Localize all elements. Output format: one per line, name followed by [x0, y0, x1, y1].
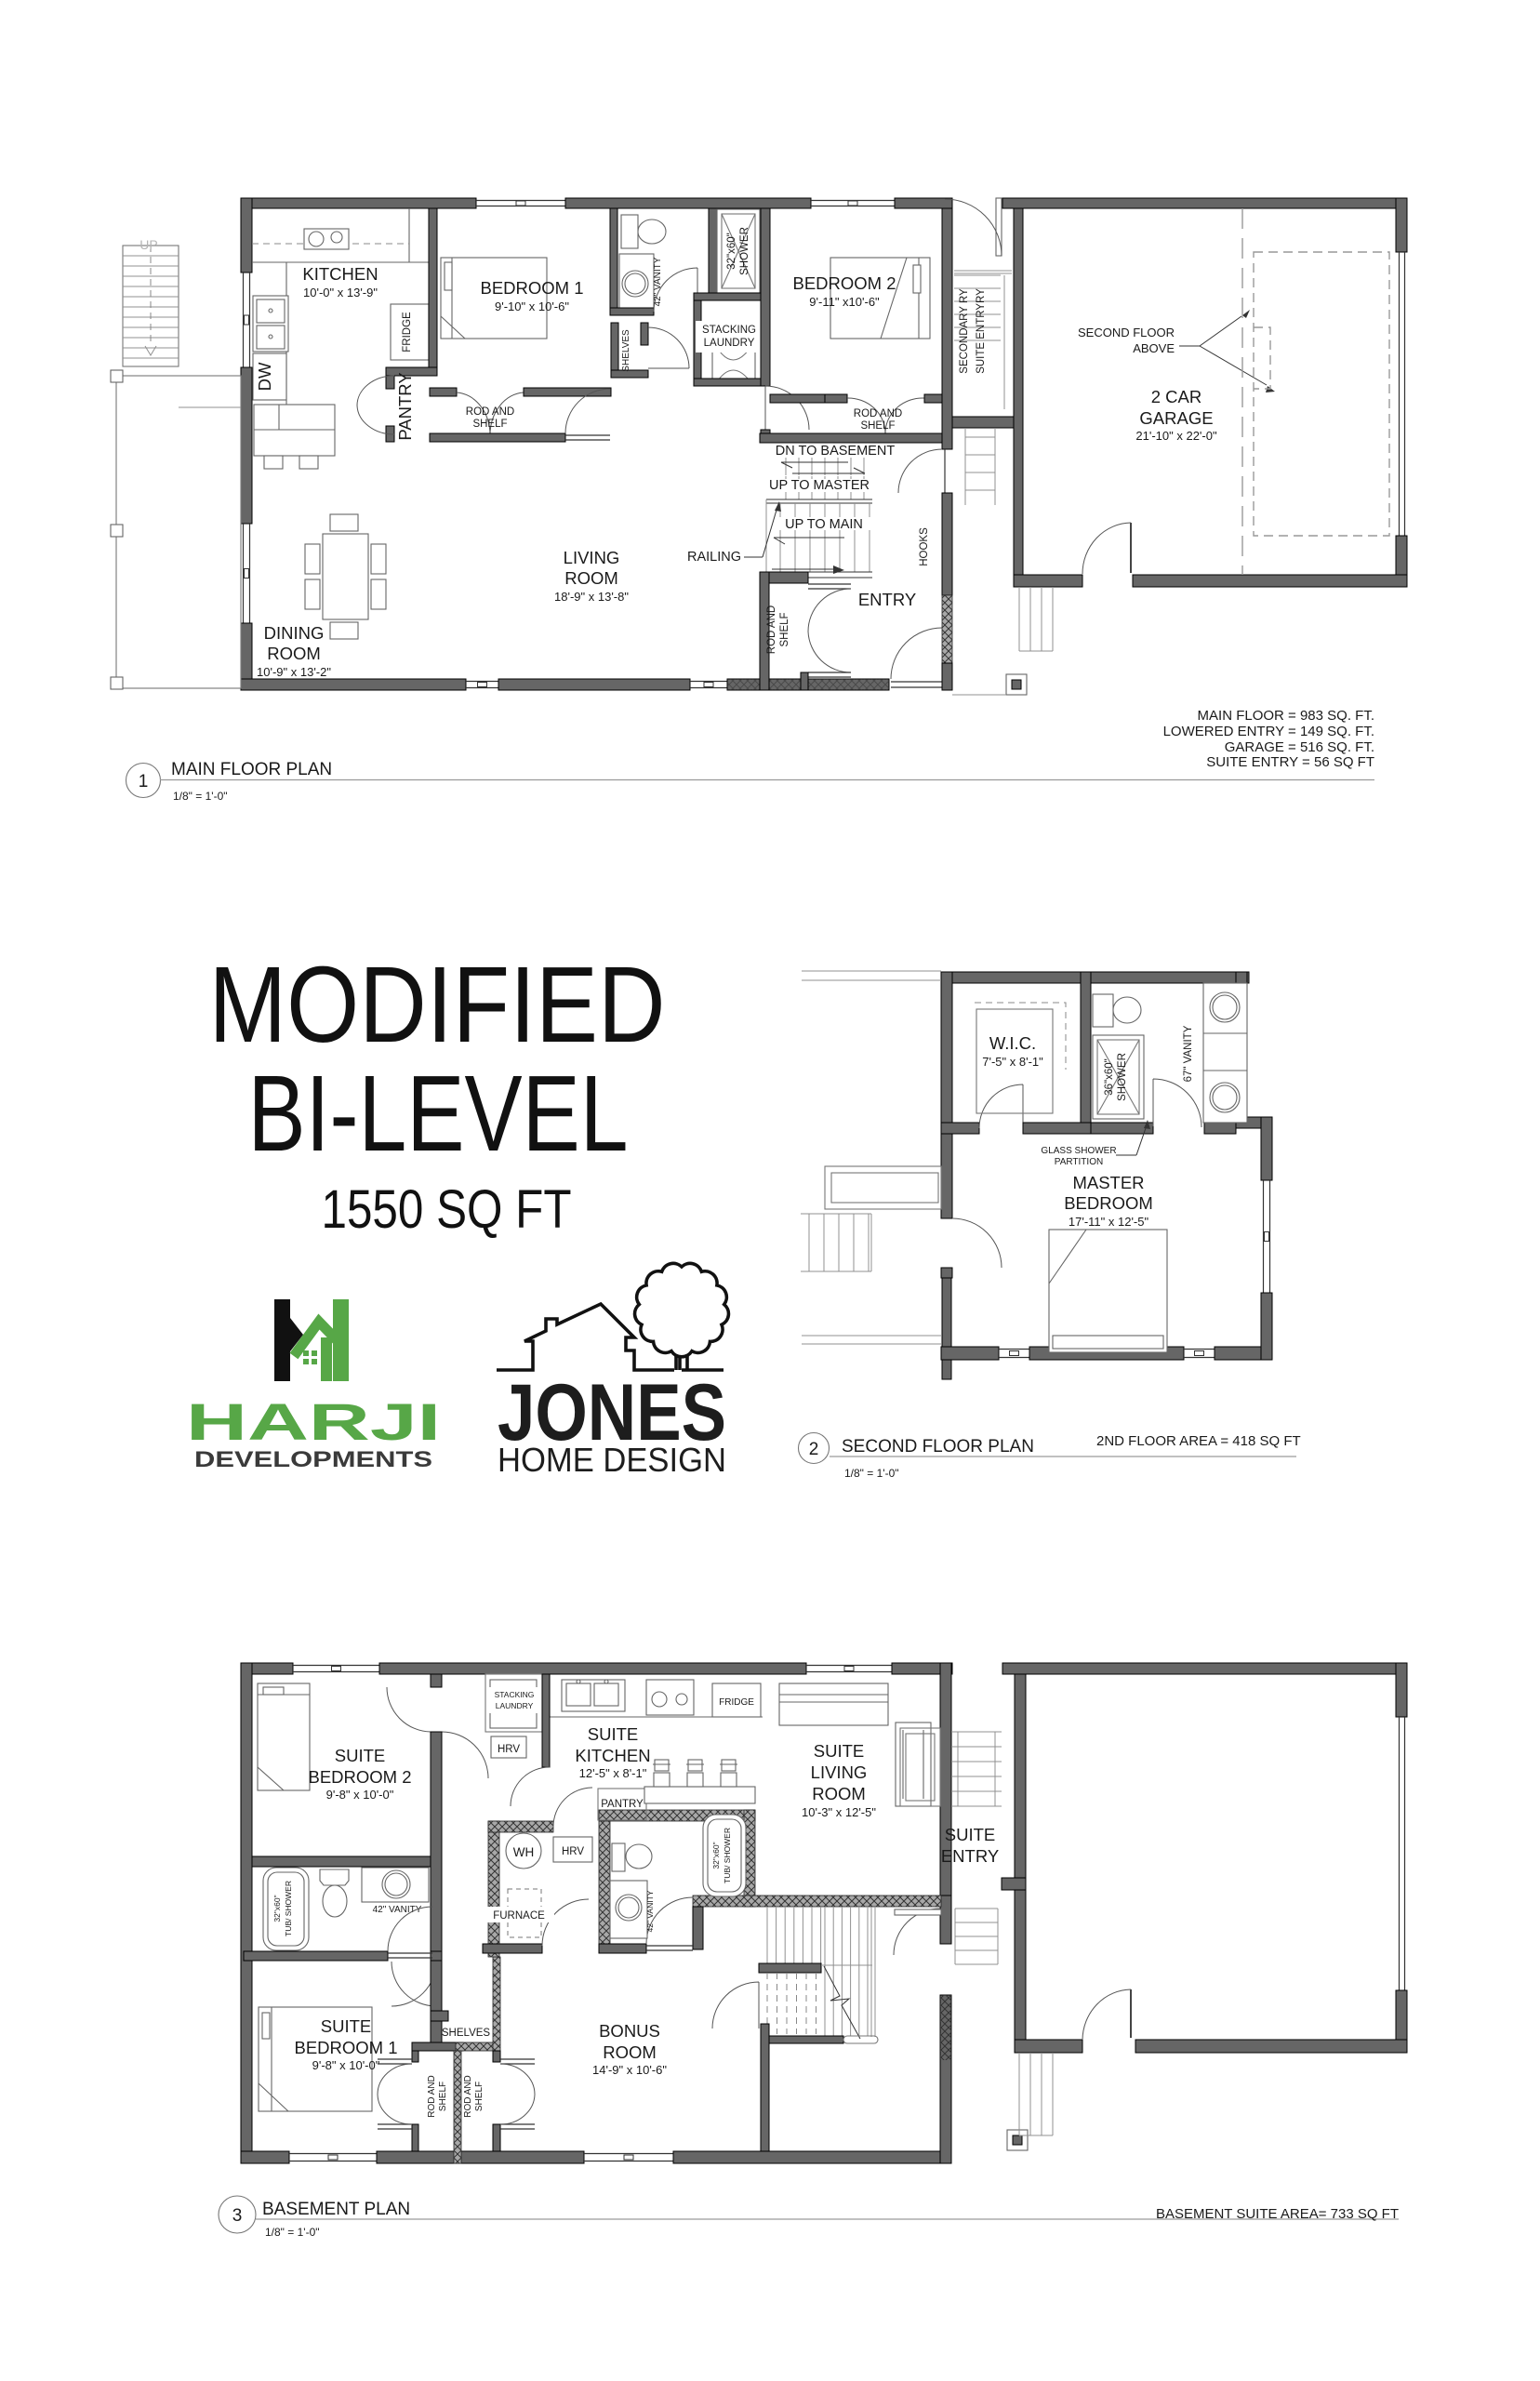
svg-text:SHELF: SHELF [860, 420, 895, 432]
svg-text:UP: UP [139, 237, 157, 252]
svg-text:2ND FLOOR AREA = 418 SQ FT: 2ND FLOOR AREA = 418 SQ FT [1096, 1433, 1301, 1449]
svg-text:SHELVES: SHELVES [442, 2028, 491, 2039]
svg-text:9'-8" x 10'-0": 9'-8" x 10'-0" [312, 2058, 380, 2072]
svg-text:BEDROOM 2: BEDROOM 2 [792, 273, 896, 293]
svg-text:2: 2 [809, 1440, 819, 1459]
svg-text:SHELF: SHELF [779, 612, 790, 646]
svg-text:9'-10" x 10'-6": 9'-10" x 10'-6" [495, 299, 569, 313]
svg-text:TUB/ SHOWER: TUB/ SHOWER [284, 1881, 293, 1936]
svg-text:SECONDARY RY: SECONDARY RY [959, 288, 970, 374]
svg-text:GLASS SHOWER: GLASS SHOWER [1041, 1146, 1116, 1156]
svg-text:SUITE ENTRYRY: SUITE ENTRYRY [976, 288, 987, 374]
svg-text:42" VANITY: 42" VANITY [653, 257, 663, 306]
svg-text:SUITE: SUITE [814, 1741, 864, 1761]
svg-text:12'-5" x 8'-1": 12'-5" x 8'-1" [579, 1766, 647, 1780]
svg-text:BI-LEVEL: BI-LEVEL [248, 1053, 629, 1174]
svg-text:9'-8" x 10'-0": 9'-8" x 10'-0" [326, 1788, 394, 1802]
svg-text:BEDROOM 2: BEDROOM 2 [308, 1767, 411, 1787]
svg-text:1/8" = 1'-0": 1/8" = 1'-0" [173, 790, 228, 803]
svg-text:ENTRY: ENTRY [941, 1846, 999, 1866]
svg-text:10'-3" x 12'-5": 10'-3" x 12'-5" [802, 1805, 876, 1819]
svg-text:SUITE ENTRY = 56 SQ FT: SUITE ENTRY = 56 SQ FT [1206, 754, 1374, 770]
svg-text:KITCHEN: KITCHEN [575, 1746, 650, 1765]
svg-text:MAIN FLOOR = 983 SQ. FT.: MAIN FLOOR = 983 SQ. FT. [1198, 708, 1374, 724]
svg-text:42" VANITY: 42" VANITY [645, 1890, 655, 1932]
svg-text:BEDROOM: BEDROOM [1064, 1193, 1153, 1213]
svg-text:SECOND FLOOR PLAN: SECOND FLOOR PLAN [842, 1437, 1034, 1457]
svg-text:BEDROOM 1: BEDROOM 1 [294, 2038, 397, 2057]
svg-text:PANTRY: PANTRY [601, 1799, 644, 1810]
svg-text:BONUS: BONUS [599, 2021, 660, 2041]
svg-text:ROD AND: ROD AND [427, 2075, 437, 2118]
svg-text:HARJI: HARJI [186, 1392, 441, 1451]
svg-text:ROOM: ROOM [267, 644, 321, 663]
svg-text:LAUNDRY: LAUNDRY [704, 338, 755, 349]
svg-text:SHELF: SHELF [474, 2082, 485, 2111]
svg-text:SHOWER: SHOWER [1117, 1053, 1128, 1101]
svg-text:1/8" = 1'-0": 1/8" = 1'-0" [844, 1467, 899, 1480]
svg-text:FRIDGE: FRIDGE [719, 1697, 754, 1708]
svg-text:67" VANITY: 67" VANITY [1183, 1025, 1194, 1082]
svg-text:TUB/ SHOWER: TUB/ SHOWER [723, 1828, 732, 1883]
svg-text:LOWERED ENTRY = 149 SQ. FT.: LOWERED ENTRY = 149 SQ. FT. [1163, 724, 1374, 739]
svg-text:ROOM: ROOM [564, 568, 618, 588]
svg-text:10'-9" x 13'-2": 10'-9" x 13'-2" [257, 665, 331, 679]
svg-text:HOME DESIGN: HOME DESIGN [498, 1441, 726, 1479]
svg-text:DW: DW [255, 362, 274, 391]
svg-text:SHELVES: SHELVES [621, 329, 631, 372]
svg-text:2 CAR: 2 CAR [1151, 387, 1202, 406]
svg-text:MODIFIED: MODIFIED [209, 944, 666, 1065]
svg-text:RAILING: RAILING [687, 550, 741, 565]
svg-text:7'-5" x 8'-1": 7'-5" x 8'-1" [982, 1055, 1043, 1069]
svg-text:HRV: HRV [498, 1744, 520, 1755]
svg-text:SHELF: SHELF [472, 419, 507, 430]
svg-text:10'-0" x 13'-9": 10'-0" x 13'-9" [303, 286, 378, 299]
svg-text:SHOWER: SHOWER [739, 227, 750, 275]
svg-text:FRIDGE: FRIDGE [402, 312, 413, 352]
svg-text:SUITE: SUITE [588, 1724, 638, 1744]
svg-text:3: 3 [232, 2206, 243, 2226]
svg-text:18'-9" x 13'-8": 18'-9" x 13'-8" [554, 590, 629, 604]
svg-text:LIVING: LIVING [564, 548, 620, 567]
svg-text:SUITE: SUITE [321, 2016, 371, 2036]
svg-text:DN TO BASEMENT: DN TO BASEMENT [776, 444, 896, 459]
svg-text:1550 SQ FT: 1550 SQ FT [322, 1179, 572, 1240]
svg-text:SUITE: SUITE [945, 1825, 995, 1844]
svg-text:HOOKS: HOOKS [919, 527, 930, 566]
svg-text:BEDROOM 1: BEDROOM 1 [480, 278, 583, 298]
svg-text:UP TO MAIN: UP TO MAIN [785, 517, 863, 532]
svg-text:1/8" = 1'-0": 1/8" = 1'-0" [265, 2226, 320, 2239]
svg-text:ENTRY: ENTRY [858, 590, 916, 609]
svg-text:DINING: DINING [264, 623, 325, 643]
svg-text:ROD AND: ROD AND [466, 406, 514, 418]
svg-text:BASEMENT SUITE AREA= 733 SQ FT: BASEMENT SUITE AREA= 733 SQ FT [1156, 2206, 1399, 2222]
svg-text:SECOND FLOOR: SECOND FLOOR [1078, 326, 1175, 339]
svg-text:14'-9" x 10'-6": 14'-9" x 10'-6" [592, 2063, 667, 2077]
svg-text:STACKING: STACKING [495, 1690, 535, 1699]
svg-text:PARTITION: PARTITION [1055, 1157, 1103, 1167]
svg-text:FURNACE: FURNACE [493, 1910, 545, 1922]
svg-text:32"x60": 32"x60" [726, 233, 737, 270]
svg-text:ROOM: ROOM [812, 1784, 866, 1803]
svg-text:STACKING: STACKING [702, 325, 756, 336]
svg-text:UP TO MASTER: UP TO MASTER [769, 478, 870, 493]
svg-text:ABOVE: ABOVE [1133, 341, 1175, 355]
svg-text:MASTER: MASTER [1072, 1173, 1144, 1192]
svg-text:LAUNDRY: LAUNDRY [496, 1701, 534, 1710]
svg-text:32"x60": 32"x60" [272, 1895, 282, 1922]
svg-text:HRV: HRV [562, 1846, 584, 1857]
svg-text:36"x60": 36"x60" [1104, 1058, 1115, 1096]
svg-text:1: 1 [139, 772, 149, 791]
svg-text:KITCHEN: KITCHEN [302, 264, 378, 284]
svg-text:W.I.C.: W.I.C. [989, 1033, 1036, 1053]
svg-text:PANTRY: PANTRY [395, 372, 415, 440]
svg-text:GARAGE: GARAGE [1139, 408, 1213, 428]
svg-text:DEVELOPMENTS: DEVELOPMENTS [194, 1447, 432, 1472]
svg-text:LIVING: LIVING [811, 1762, 868, 1782]
svg-text:ROD AND: ROD AND [766, 605, 777, 654]
svg-text:BASEMENT PLAN: BASEMENT PLAN [262, 2200, 410, 2219]
svg-text:ROOM: ROOM [603, 2042, 657, 2062]
svg-text:SUITE: SUITE [335, 1746, 385, 1765]
svg-text:ROD AND: ROD AND [463, 2075, 473, 2118]
svg-text:MAIN FLOOR PLAN: MAIN FLOOR PLAN [171, 760, 332, 779]
svg-text:SHELF: SHELF [438, 2082, 448, 2111]
svg-text:WH: WH [513, 1845, 535, 1859]
svg-text:9'-11" x10'-6": 9'-11" x10'-6" [809, 295, 880, 309]
svg-text:17'-11" x 12'-5": 17'-11" x 12'-5" [1069, 1215, 1149, 1229]
svg-text:32"x60": 32"x60" [711, 1842, 721, 1869]
svg-text:21'-10" x 22'-0": 21'-10" x 22'-0" [1135, 429, 1217, 443]
svg-text:ROD AND: ROD AND [854, 408, 902, 419]
svg-text:GARAGE = 516 SQ. FT.: GARAGE = 516 SQ. FT. [1225, 739, 1374, 755]
